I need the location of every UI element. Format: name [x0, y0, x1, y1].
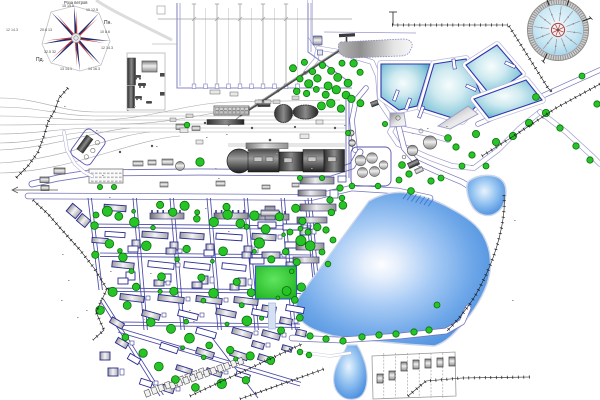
svg-text:20.6 13: 20.6 13 [40, 28, 52, 32]
svg-text:Роза ветров: Роза ветров [64, 0, 88, 5]
svg-text:Пд.: Пд. [36, 57, 44, 63]
svg-text:13 14.1: 13 14.1 [60, 67, 72, 71]
svg-text:14 16.3: 14 16.3 [88, 67, 100, 71]
svg-text:12 14.3: 12 14.3 [101, 46, 113, 50]
svg-text:Пн.: Пн. [104, 20, 112, 26]
svg-text:32.5 32: 32.5 32 [44, 50, 56, 54]
svg-text:10 12.5: 10 12.5 [86, 8, 98, 12]
svg-text:12 14.3: 12 14.3 [6, 28, 18, 32]
svg-text:10 8.6: 10 8.6 [100, 30, 110, 34]
